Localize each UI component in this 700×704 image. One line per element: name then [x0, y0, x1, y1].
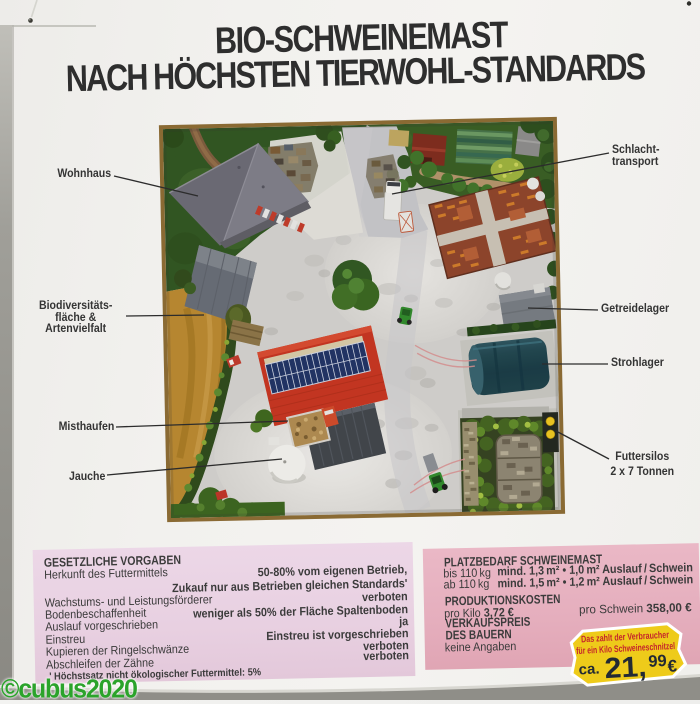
- svg-text:21,: 21,: [604, 651, 648, 685]
- svg-text:ca.: ca.: [578, 660, 600, 678]
- svg-text:€: €: [667, 656, 678, 675]
- svg-text:99: 99: [648, 652, 667, 671]
